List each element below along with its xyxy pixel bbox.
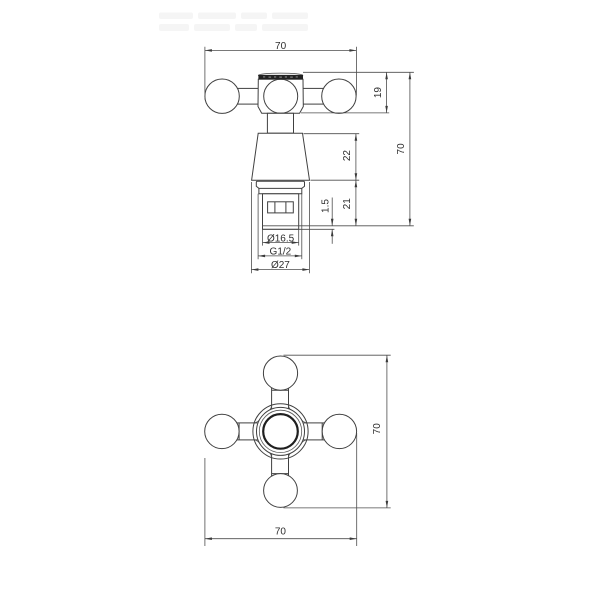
svg-text:Ø27: Ø27 xyxy=(271,260,290,271)
svg-text:22: 22 xyxy=(342,150,353,162)
svg-text:70: 70 xyxy=(372,423,383,435)
svg-text:G1/2: G1/2 xyxy=(270,247,292,258)
svg-text:1.5: 1.5 xyxy=(320,199,331,213)
svg-text:21: 21 xyxy=(342,198,353,210)
svg-text:19: 19 xyxy=(373,87,384,99)
svg-text:70: 70 xyxy=(396,143,407,155)
svg-text:Ø16.5: Ø16.5 xyxy=(267,233,295,244)
svg-text:70: 70 xyxy=(275,527,287,538)
svg-text:70: 70 xyxy=(275,41,287,52)
